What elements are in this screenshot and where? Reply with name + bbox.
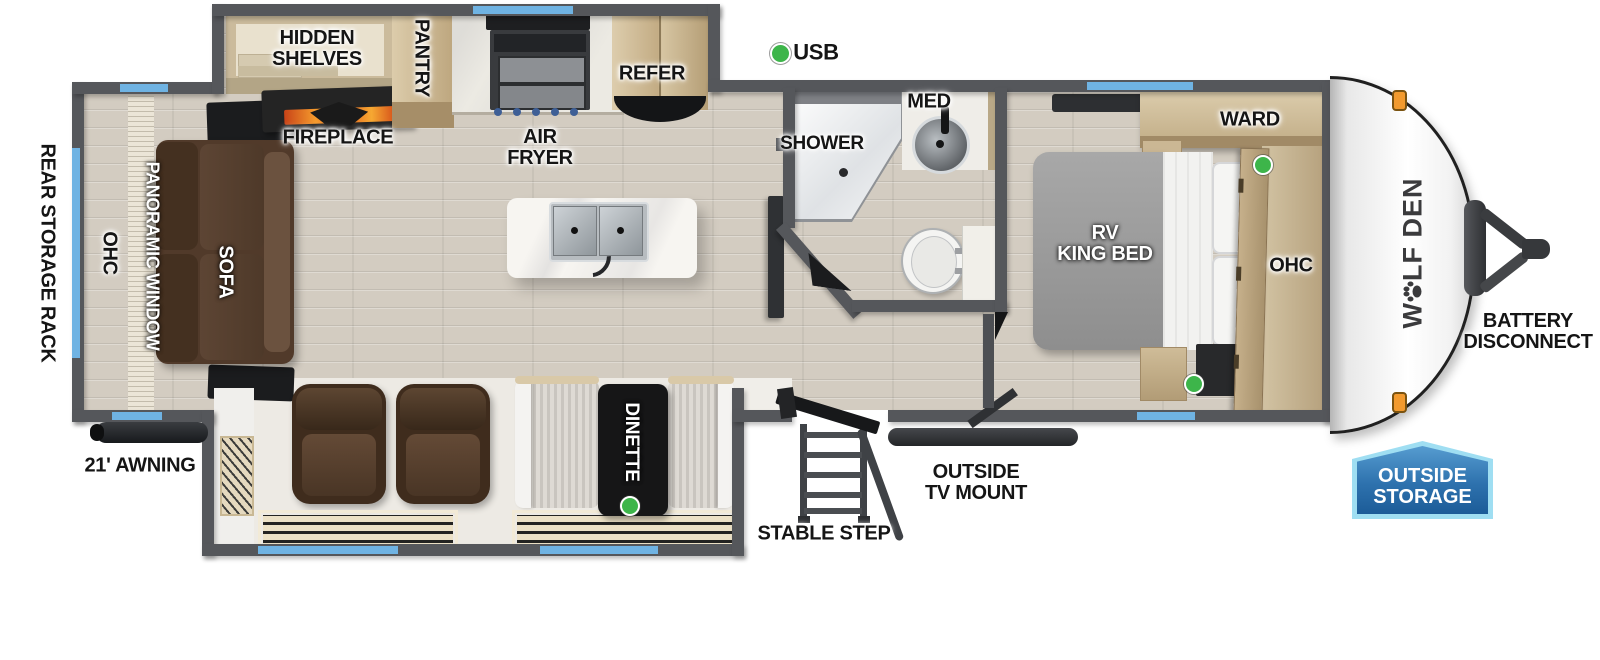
outside-storage-line1: OUTSIDE — [1378, 466, 1467, 487]
hidden-shelves-label: HIDDEN SHELVES — [272, 28, 362, 70]
paw-icon — [1404, 281, 1423, 302]
theater-chair — [396, 384, 490, 504]
window-bedroom-top — [1087, 82, 1193, 90]
usb-indicator — [1184, 374, 1204, 394]
rear-ohc-label: OHC — [98, 231, 119, 275]
panoramic-window-label: PANORAMIC WINDOW — [142, 162, 161, 351]
theater-chair — [292, 384, 386, 504]
window-bottom-slide-left — [258, 546, 398, 554]
wall-top-slide-top — [212, 4, 720, 16]
usb-indicator — [620, 496, 640, 516]
wall-bottom-main — [888, 410, 1334, 422]
rear-storage-rack-label: REAR STORAGE RACK — [36, 144, 57, 363]
outside-storage-line2: STORAGE — [1373, 487, 1472, 508]
nightstand-bottom — [1140, 347, 1187, 401]
marker-light — [1392, 90, 1407, 111]
refrigerator — [612, 12, 708, 110]
window-bedroom-bottom — [1137, 412, 1195, 420]
outside-tv-mount-label: OUTSIDE TV MOUNT — [925, 462, 1027, 504]
marker-light — [1392, 392, 1407, 413]
shower-drain — [839, 168, 848, 177]
fireplace-label: FIREPLACE — [283, 127, 394, 148]
window-top-slide — [473, 6, 573, 14]
wall-bath-left — [783, 88, 795, 228]
rv-floorplan: WLF DEN USB REAR STORAGE RACK OHC PANORA… — [0, 0, 1600, 660]
awning-roller — [96, 422, 208, 443]
range-hood — [486, 14, 590, 30]
window-rear-left — [72, 148, 80, 358]
usb-indicator — [1253, 155, 1273, 175]
air-fryer-range — [490, 30, 590, 110]
brand-text-pre: W — [1398, 302, 1429, 328]
ward-label: WARD — [1220, 109, 1280, 130]
med-label: MED — [907, 91, 951, 112]
magazine-rack — [220, 436, 254, 516]
stable-step-label: STABLE STEP — [757, 523, 890, 544]
shower-label: SHOWER — [780, 134, 864, 154]
shower-header — [786, 91, 901, 104]
wall-bath-right — [995, 88, 1007, 312]
dinette-label: DINETTE — [621, 402, 641, 481]
sofa-label: SOFA — [214, 245, 235, 298]
bath-shelf — [962, 226, 996, 306]
king-bed-sheet — [1163, 152, 1213, 350]
outside-tv-mount-bar — [888, 428, 1078, 446]
battery-disconnect-label: BATTERY DISCONNECT — [1463, 311, 1592, 353]
living-tv — [768, 196, 784, 318]
bedroom-ohc-label: OHC — [1269, 255, 1313, 276]
awning-label: 21' AWNING — [84, 455, 195, 476]
window-bottom-slide-right — [540, 546, 658, 554]
toilet — [901, 228, 965, 294]
brand-text-post: LF DEN — [1398, 178, 1429, 282]
window-rear-bottom — [112, 412, 162, 420]
pantry-label: PANTRY — [410, 19, 431, 97]
hitch-coupler — [1522, 239, 1550, 259]
usb-label: USB — [793, 40, 839, 63]
usb-indicator — [770, 43, 791, 64]
window-rear-top — [120, 84, 168, 92]
range-knobs — [494, 108, 586, 118]
wall-bath-bottom — [852, 300, 1007, 312]
dinette-bench — [515, 380, 599, 508]
refer-label: REFER — [619, 63, 685, 84]
awning-roller-cap — [90, 424, 104, 441]
bedroom-ohc-cabinet — [1262, 146, 1327, 416]
rv-king-bed-label: RV KING BED — [1057, 223, 1152, 265]
outside-storage-badge: OUTSIDE STORAGE — [1352, 441, 1493, 519]
wall-top-slide-right — [708, 4, 720, 92]
wall-top-slide-left — [212, 4, 224, 94]
dinette-bench — [668, 380, 734, 508]
bedroom-door-leaf — [983, 314, 994, 408]
wall-top-main — [708, 80, 1334, 92]
air-fryer-label: AIR FRYER — [507, 127, 573, 169]
